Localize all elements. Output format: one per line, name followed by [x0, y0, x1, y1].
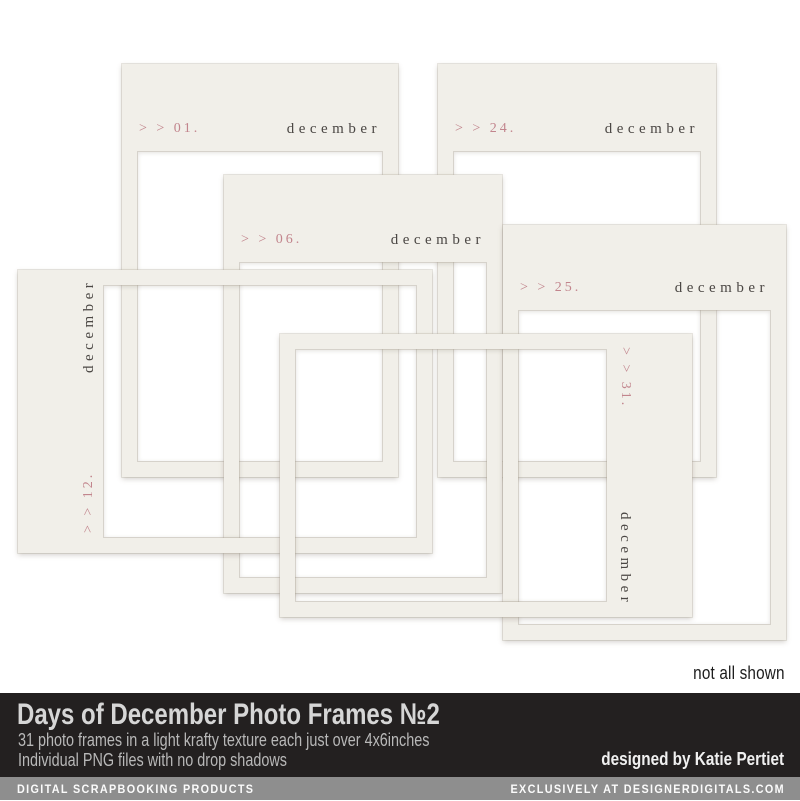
frames-preview-area: > > 24. december > > 01. december > > 06…	[0, 0, 800, 693]
frame-month-label: december	[79, 279, 99, 373]
brand-bar-right-text: EXCLUSIVELY AT DESIGNERDIGITALS.COM	[511, 777, 785, 800]
frame-day-number: > > 12.	[79, 472, 99, 533]
frame-label-row: > > 06. december	[241, 230, 485, 250]
photo-frame-31: > > 31. december	[280, 334, 692, 617]
frame-label-row: > > 01. december	[139, 119, 381, 139]
footer-brand-bar: DIGITAL SCRAPBOOKING PRODUCTS EXCLUSIVEL…	[0, 777, 800, 800]
frame-month-label: december	[605, 119, 699, 139]
frame-day-number: > > 31.	[615, 347, 635, 408]
product-description-line1: 31 photo frames in a light krafty textur…	[18, 730, 429, 751]
frame-day-number: > > 01.	[139, 119, 200, 139]
frame-day-number: > > 25.	[520, 278, 581, 298]
product-description-line2: Individual PNG files with no drop shadow…	[18, 750, 287, 771]
product-title: Days of December Photo Frames №2	[17, 698, 440, 732]
frame-label-row: > > 24. december	[455, 119, 699, 139]
frame-month-label: december	[287, 119, 381, 139]
frame-month-label: december	[391, 230, 485, 250]
frame-month-label: december	[615, 512, 635, 606]
designer-credit: designed by Katie Pertiet	[601, 749, 784, 770]
frame-day-number: > > 06.	[241, 230, 302, 250]
frame-month-label: december	[675, 278, 769, 298]
frame-day-number: > > 24.	[455, 119, 516, 139]
not-all-shown-note: not all shown	[693, 662, 785, 684]
brand-bar-left-text: DIGITAL SCRAPBOOKING PRODUCTS	[17, 777, 254, 800]
footer-info-band: Days of December Photo Frames №2 31 phot…	[0, 693, 800, 777]
frame-label-row: > > 25. december	[520, 278, 769, 298]
